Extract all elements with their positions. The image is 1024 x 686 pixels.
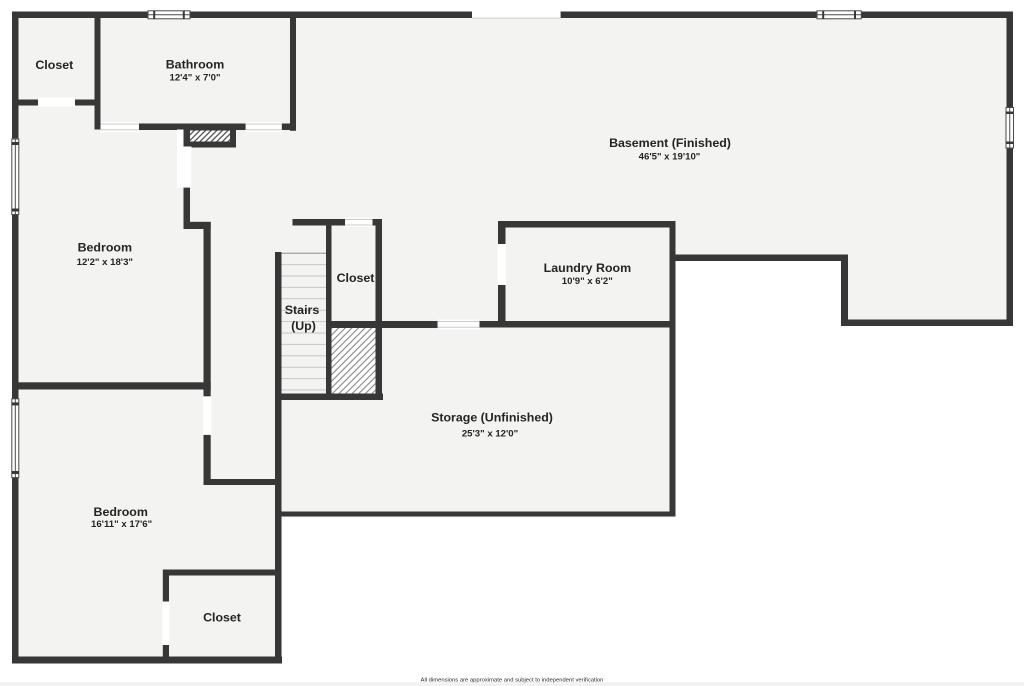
- svg-text:16'11" x 17'6": 16'11" x 17'6": [91, 519, 152, 530]
- svg-text:Bathroom: Bathroom: [166, 57, 225, 71]
- svg-text:Laundry Room: Laundry Room: [544, 261, 631, 275]
- svg-text:Closet: Closet: [35, 58, 73, 72]
- svg-text:All dimensions are approximate: All dimensions are approximate and subje…: [421, 677, 604, 683]
- svg-text:Basement (Finished): Basement (Finished): [609, 136, 731, 150]
- svg-text:(Up): (Up): [291, 319, 316, 333]
- svg-text:Closet: Closet: [337, 271, 375, 285]
- svg-text:25'3" x 12'0": 25'3" x 12'0": [462, 428, 518, 439]
- svg-text:Bedroom: Bedroom: [94, 505, 148, 519]
- svg-text:10'9" x 6'2": 10'9" x 6'2": [562, 276, 613, 287]
- svg-text:46'5" x 19'10": 46'5" x 19'10": [639, 152, 701, 163]
- svg-text:Bedroom: Bedroom: [78, 241, 132, 255]
- svg-text:12'4" x 7'0": 12'4" x 7'0": [169, 72, 220, 83]
- svg-text:Closet: Closet: [203, 611, 241, 625]
- svg-text:Stairs: Stairs: [285, 303, 320, 317]
- svg-text:12'2" x 18'3": 12'2" x 18'3": [77, 257, 133, 268]
- svg-text:Storage (Unfinished): Storage (Unfinished): [431, 411, 553, 425]
